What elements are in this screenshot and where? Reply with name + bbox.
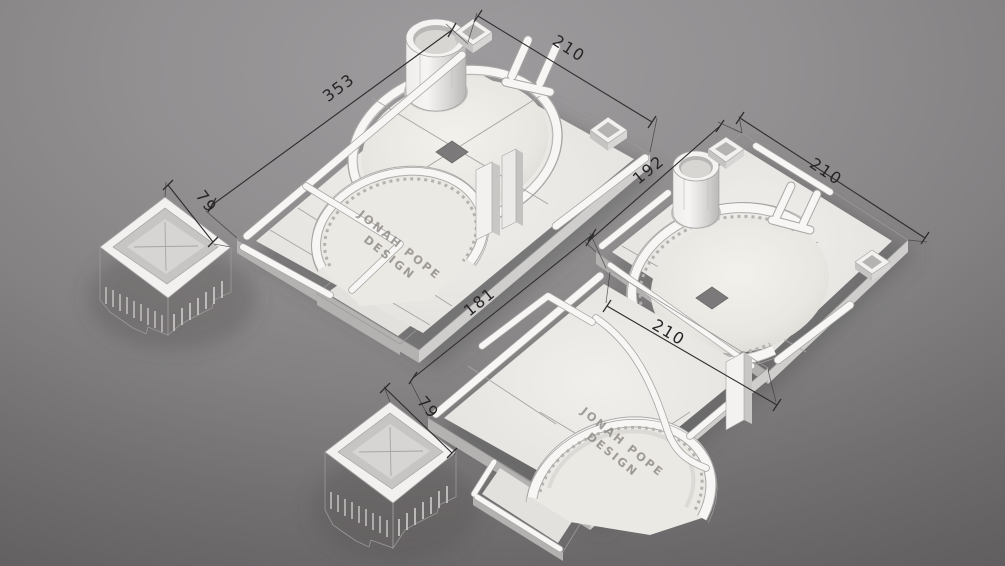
wall-slabs — [726, 352, 752, 430]
scene-canvas: JONAH POPE DESIGN — [0, 0, 1005, 566]
render-viewport: JONAH POPE DESIGN — [0, 0, 1005, 566]
